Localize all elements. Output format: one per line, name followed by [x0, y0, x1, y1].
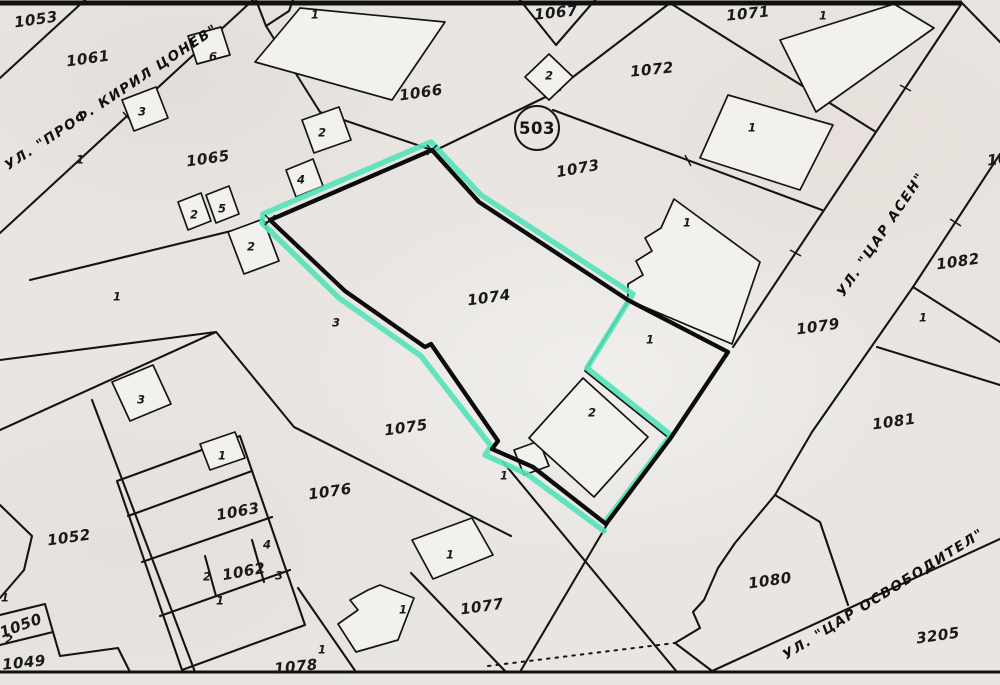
parcel-label-3205: 3205: [915, 626, 960, 647]
building-number-2: 2: [247, 241, 255, 253]
building-number-2: 2: [203, 571, 211, 583]
building-number-1: 1: [500, 470, 508, 482]
building-number-1: 1: [218, 450, 226, 462]
building-number-1: 1: [399, 604, 407, 616]
building-number-2: 2: [5, 634, 13, 646]
parcel-label-1079: 1079: [795, 317, 840, 338]
parcel-label-1066: 1066: [398, 83, 443, 104]
parcel-label-1062: 1062: [221, 561, 267, 583]
parcel-label-1077: 1077: [459, 597, 504, 618]
building-number-3: 3: [332, 317, 340, 329]
building-number-1: 1: [446, 549, 454, 561]
parcel-label-1072: 1072: [629, 60, 674, 79]
parcel-label-1067: 1067: [533, 3, 578, 22]
parcel-label-1082: 1082: [935, 252, 980, 273]
building-number-5: 5: [218, 203, 226, 215]
parcel-label-1061: 1061: [65, 49, 110, 70]
map-labels: 1053106110651066106710711072107310741075…: [0, 0, 1000, 685]
parcel-label-1080: 1080: [747, 571, 792, 592]
building-number-1: 1: [919, 312, 927, 324]
building-number-2: 2: [318, 127, 326, 139]
parcel-label-1075: 1075: [383, 418, 428, 439]
building-number-2: 2: [545, 70, 553, 82]
building-number-1: 1: [646, 334, 654, 346]
parcel-label-1053: 1053: [13, 10, 58, 31]
parcel-label-1074: 1074: [466, 288, 511, 309]
building-number-4: 4: [263, 539, 271, 551]
building-number-2: 2: [190, 209, 198, 221]
street-name-ул-цар-освободител-: УЛ. "ЦАР ОСВОБОДИТЕЛ": [781, 527, 987, 663]
parcel-label-1052: 1052: [46, 528, 91, 549]
street-name-ул-проф-кирил-цонев-: УЛ. "ПРОФ. КИРИЛ ЦОНЕВ": [3, 23, 221, 174]
street-name-ул-цар-асен-: УЛ. "ЦАР АСЕН": [835, 171, 928, 300]
building-number-2: 2: [588, 407, 596, 419]
building-number-3: 3: [138, 106, 146, 118]
parcel-label-1073: 1073: [555, 158, 601, 180]
building-number-1: 1: [683, 217, 691, 229]
building-number-3: 3: [137, 394, 145, 406]
building-number-1: 1: [76, 154, 84, 166]
building-number-1: 1: [216, 595, 224, 607]
parcel-label-1063: 1063: [215, 501, 261, 523]
building-number-3: 3: [275, 570, 283, 582]
building-number-1: 1: [113, 291, 121, 303]
building-number-1: 1: [1, 592, 9, 604]
cadastral-map: 503 105310611065106610671071107210731074…: [0, 0, 1000, 685]
building-number-6: 6: [209, 51, 217, 63]
building-number-4: 4: [297, 174, 305, 186]
building-number-1: 1: [318, 644, 326, 656]
parcel-label-1049: 1049: [1, 653, 46, 672]
parcel-label-1071: 1071: [725, 4, 770, 23]
parcel-label-1078: 1078: [273, 657, 318, 676]
building-number-1: 1: [311, 9, 319, 21]
parcel-label-10: 10: [986, 151, 1000, 168]
parcel-label-1081: 1081: [871, 412, 916, 433]
building-number-1: 1: [748, 122, 756, 134]
building-number-1: 1: [819, 10, 827, 22]
parcel-label-1076: 1076: [307, 482, 352, 503]
parcel-label-1065: 1065: [185, 149, 230, 170]
